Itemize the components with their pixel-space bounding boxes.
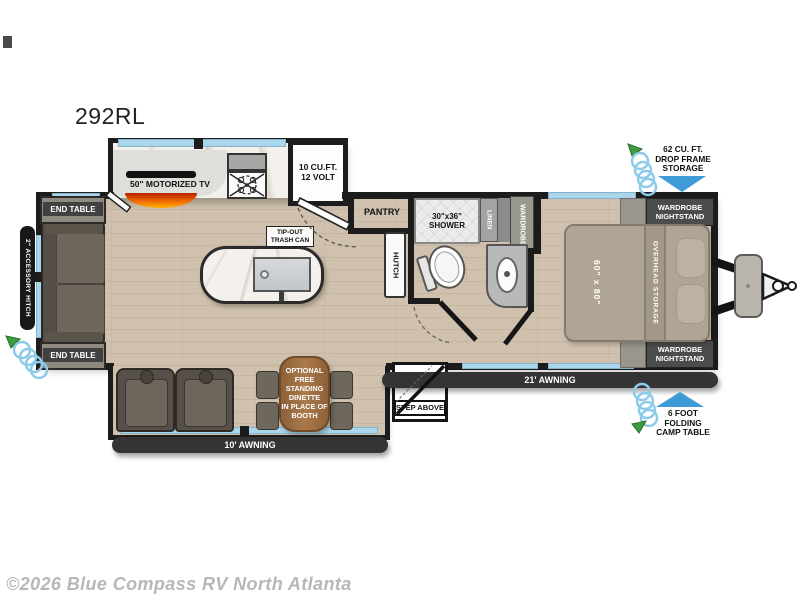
hutch: HUTCH: [384, 232, 406, 298]
awning-21-label: 21' AWNING: [524, 375, 575, 385]
bath-vanity: [486, 244, 528, 308]
queen-bed: 60" x 80" OVERHEAD STORAGE: [564, 224, 710, 342]
wardrobe-label: WARDROBE: [519, 204, 526, 246]
bath-wall-right: [528, 248, 534, 312]
accessory-hitch-label: 2" ACCESSORY HITCH: [24, 239, 31, 317]
overhead-storage-label: OVERHEAD STORAGE: [652, 241, 659, 325]
bedroom-cabinet-bottom: [620, 340, 646, 368]
pillow: [676, 284, 706, 324]
pillow: [676, 238, 706, 278]
sofa-armrest: [45, 332, 103, 342]
refrigerator-label: 10 CU.FT. 12 VOLT: [299, 163, 337, 183]
sink-handle: [279, 291, 284, 302]
end-table-bottom-label: END TABLE: [43, 348, 103, 362]
shower: 30"x36" SHOWER: [414, 198, 480, 244]
dinette-table: OPTIONAL FREE STANDING DINETTE IN PLACE …: [279, 356, 330, 432]
model-title: 292RL: [75, 103, 145, 130]
drop-frame-storage-label: 62 CU. FT. DROP FRAME STORAGE: [648, 145, 718, 174]
living-slide-wall-left: [108, 366, 113, 440]
dealer-watermark: ©2026 Blue Compass RV North Atlanta: [6, 574, 352, 595]
hutch-label: HUTCH: [391, 252, 400, 278]
trash-can-label: TIP-OUT TRASH CAN: [271, 229, 309, 244]
awning-21: 21' AWNING: [382, 372, 718, 388]
pantry-label: PANTRY: [352, 207, 412, 217]
nightstand-top: WARDROBE NIGHTSTAND: [646, 198, 714, 226]
sofa-armrest: [45, 224, 103, 234]
sofa: [41, 222, 105, 344]
page-corner-artifact: [3, 36, 12, 48]
trash-can-callout: TIP-OUT TRASH CAN: [266, 226, 314, 247]
bottom-window-1: [462, 363, 538, 369]
bed-size-label: 60" x 80": [592, 260, 602, 305]
floorplan-image: 292RL ©2026 Blue Compass RV North Atlant…: [0, 0, 800, 600]
bath-wall-bottom: [408, 298, 440, 304]
linen-cabinet: LINEN: [480, 198, 498, 242]
theater-seats: [116, 368, 234, 432]
dinette-note: OPTIONAL FREE STANDING DINETTE IN PLACE …: [281, 367, 327, 420]
shower-label: 30"x36" SHOWER: [429, 212, 465, 230]
faucet-icon: [260, 270, 269, 279]
nightstand-top-label: WARDROBE NIGHTSTAND: [656, 203, 705, 221]
entry-step-callout: STEP ABOVE: [394, 400, 446, 416]
overhead-storage: OVERHEAD STORAGE: [644, 226, 666, 340]
sofa-cushion: [56, 284, 105, 335]
recliner: [116, 368, 175, 432]
entry-step-label: STEP ABOVE: [396, 404, 444, 413]
bedroom-cabinet-top: [620, 198, 646, 226]
refrigerator: 10 CU.FT. 12 VOLT: [288, 140, 348, 206]
sink-icon: [253, 257, 311, 292]
awning-10-label: 10' AWNING: [224, 440, 275, 450]
recliner: [175, 368, 234, 432]
window-divider: [240, 426, 249, 435]
sofa-cushion: [56, 233, 105, 284]
camp-table-label: 6 FOOT FOLDING CAMP TABLE: [646, 409, 720, 438]
trailer-hitch-icon: [711, 255, 796, 317]
linen-label: LINEN: [486, 210, 493, 230]
end-table-top-label: END TABLE: [43, 202, 103, 216]
bedroom-wall: [534, 192, 541, 254]
tv-icon: [126, 171, 196, 178]
nightstand-bottom: WARDROBE NIGHTSTAND: [646, 340, 714, 368]
cabinet-divider: [498, 198, 510, 242]
arrow-up-icon: [656, 392, 704, 407]
kitchen-island: [200, 246, 324, 304]
bed-size: 60" x 80": [584, 226, 610, 340]
arrow-down-icon: [658, 176, 706, 192]
bath-faucet-icon: [504, 271, 510, 277]
dinette-bench-right: [330, 371, 353, 431]
dinette-bench-left: [256, 371, 279, 431]
window-divider: [194, 138, 203, 149]
nightstand-bottom-label: WARDROBE NIGHTSTAND: [656, 345, 705, 363]
awning-10: 10' AWNING: [112, 437, 388, 453]
accessory-hitch: 2" ACCESSORY HITCH: [20, 226, 35, 330]
tv-label: 50" MOTORIZED TV: [110, 180, 230, 190]
stove-icon: [227, 171, 267, 199]
range-hood-icon: [227, 153, 267, 171]
sofa-back: [43, 224, 56, 342]
